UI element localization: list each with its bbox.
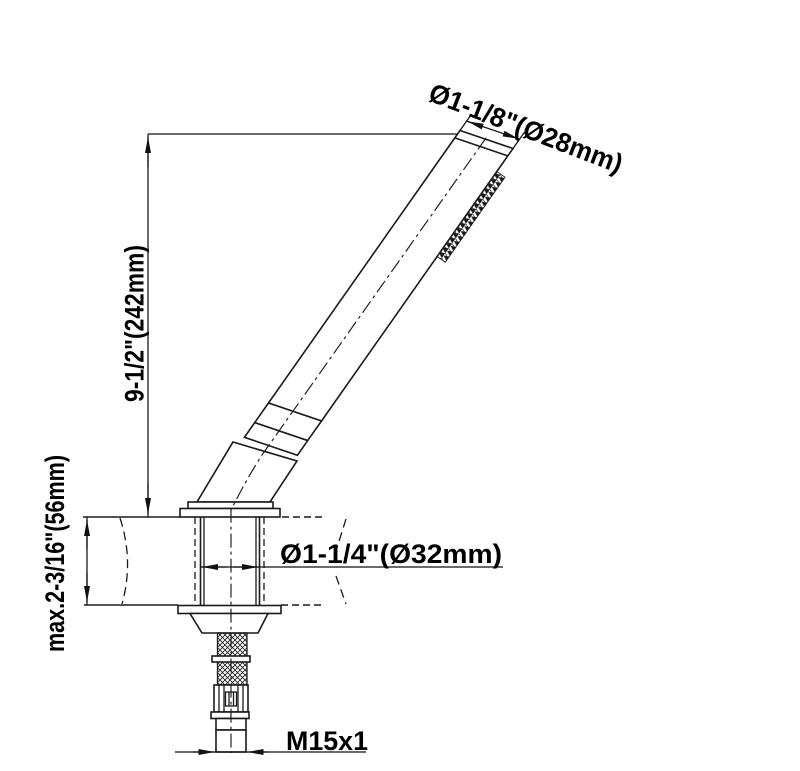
under-deck-hardware bbox=[178, 606, 281, 753]
dimension-hole-diameter: Ø1-1/4"(Ø32mm) bbox=[200, 539, 503, 569]
deck-break-line-left bbox=[120, 518, 128, 604]
hand-shower-dimension-drawing: 9-1/2"(242mm) max.2-3/16"(56mm) Ø1-1/4"(… bbox=[0, 0, 800, 771]
mounting-shank bbox=[201, 517, 260, 605]
hand-shower-wand bbox=[269, 131, 514, 422]
height-dimension-label: 9-1/2"(242mm) bbox=[120, 245, 150, 402]
under-deck-washer bbox=[178, 606, 281, 614]
holder-base-ring bbox=[188, 502, 273, 509]
shower-holder-sleeve bbox=[197, 442, 297, 502]
hole-diameter-dimension-label: Ø1-1/4"(Ø32mm) bbox=[280, 539, 502, 569]
hand-shower bbox=[180, 131, 513, 518]
dimension-max-thickness: max.2-3/16"(56mm) bbox=[40, 455, 87, 652]
mounting-flange bbox=[180, 509, 280, 518]
fitting-ring bbox=[211, 712, 249, 719]
technical-drawing-page: 9-1/2"(242mm) max.2-3/16"(56mm) Ø1-1/4"(… bbox=[0, 0, 800, 771]
thread-dimension-label: M15x1 bbox=[286, 726, 368, 756]
mounting-nut bbox=[190, 614, 268, 634]
max-thickness-dimension-label: max.2-3/16"(56mm) bbox=[40, 455, 70, 652]
dimension-connection-thread: M15x1 bbox=[175, 726, 368, 756]
